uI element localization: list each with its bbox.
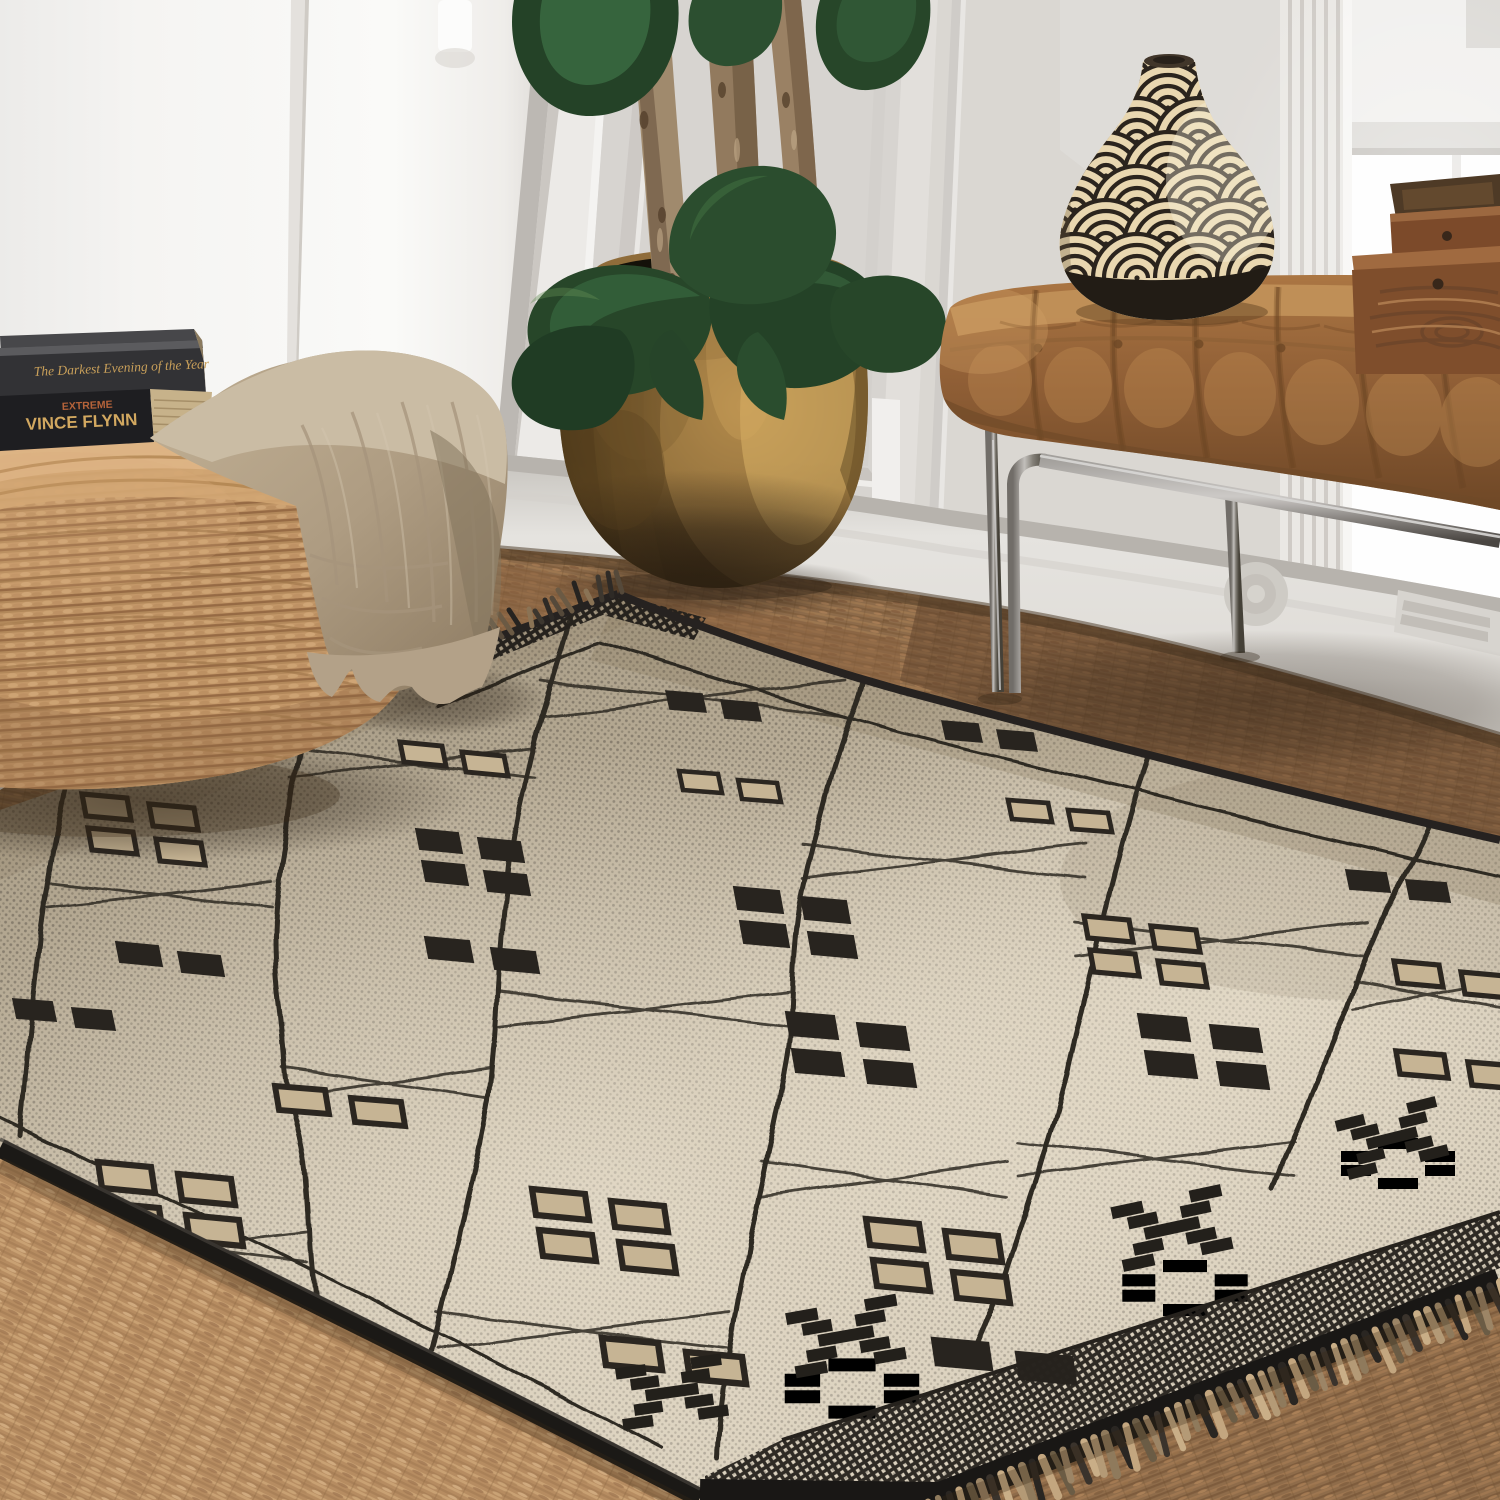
svg-text:EXTREME: EXTREME (62, 399, 113, 413)
